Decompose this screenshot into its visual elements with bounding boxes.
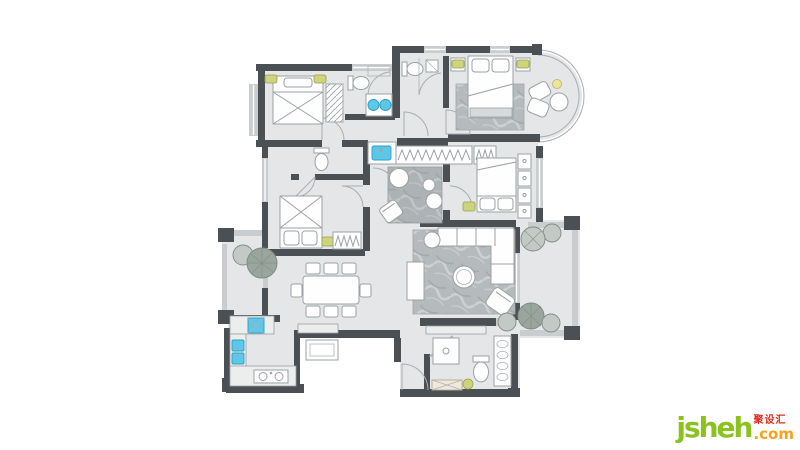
column-post <box>564 216 580 230</box>
floor-stool-icon <box>390 169 409 188</box>
nightstand-plant-icon <box>322 237 333 246</box>
toilet-icon <box>474 362 489 382</box>
vanity-cabinet <box>426 326 486 334</box>
chair-icon <box>324 263 338 274</box>
lamp-icon <box>553 80 562 89</box>
balcony-railing <box>234 230 264 236</box>
round-table-icon <box>550 93 568 111</box>
site-watermark: jsheh 聚设汇 .com <box>676 414 794 442</box>
chair-icon <box>306 306 320 317</box>
outdoor-step <box>306 340 338 360</box>
pillow <box>284 231 299 245</box>
entry <box>306 340 338 360</box>
towel-column <box>494 336 511 386</box>
chair-icon <box>306 263 320 274</box>
nightstand-plant-icon <box>452 60 464 68</box>
nightstand-plant-icon <box>463 202 475 211</box>
sink-icon <box>368 100 379 111</box>
toilet-icon <box>353 77 369 90</box>
floor-stool-icon <box>423 179 435 191</box>
chair-icon <box>342 263 356 274</box>
side-table-icon <box>424 232 440 248</box>
toilet-tank <box>402 62 407 76</box>
bed-bench <box>470 108 512 117</box>
nightstand-plant-icon <box>314 75 326 83</box>
watermark-tld: .com <box>753 427 794 442</box>
chair-icon <box>360 284 371 297</box>
chair-icon <box>324 306 338 317</box>
sink-icon <box>380 100 391 111</box>
toilet-icon <box>407 63 423 76</box>
watermark-brand: jsheh <box>676 414 751 442</box>
chair-icon <box>342 306 356 317</box>
pillow <box>492 59 509 72</box>
balcony-railing <box>520 330 566 336</box>
pillow <box>302 231 317 245</box>
dining-table-icon <box>303 276 359 304</box>
toilet-tank <box>473 356 489 362</box>
nightstand-plant-icon <box>517 60 529 68</box>
floor-plan-drawing <box>0 0 800 450</box>
nightstand-plant-icon <box>265 75 277 83</box>
balcony-railing <box>222 244 227 310</box>
column-post <box>564 326 580 340</box>
column-post <box>218 228 234 242</box>
chair-icon <box>291 284 302 297</box>
plant-icon <box>463 379 473 389</box>
hall-counter <box>298 324 338 333</box>
pillow <box>498 198 513 210</box>
floor-plan-page: jsheh 聚设汇 .com <box>0 0 800 450</box>
pillow <box>284 78 312 87</box>
shower-tray-icon <box>433 338 459 364</box>
sink-icon <box>232 353 244 364</box>
pillow <box>480 198 495 210</box>
pillow <box>472 59 489 72</box>
toilet-tank <box>348 76 353 90</box>
column-post <box>508 388 520 397</box>
floor-stool-icon <box>426 193 442 209</box>
toilet-icon <box>315 154 328 171</box>
wardrobe-icon <box>326 84 343 122</box>
dresser-drawers <box>518 154 531 218</box>
balcony-railing <box>572 230 578 326</box>
sink-icon <box>232 340 244 351</box>
tv-cabinet-icon <box>407 262 424 300</box>
toilet-tank <box>314 148 329 153</box>
